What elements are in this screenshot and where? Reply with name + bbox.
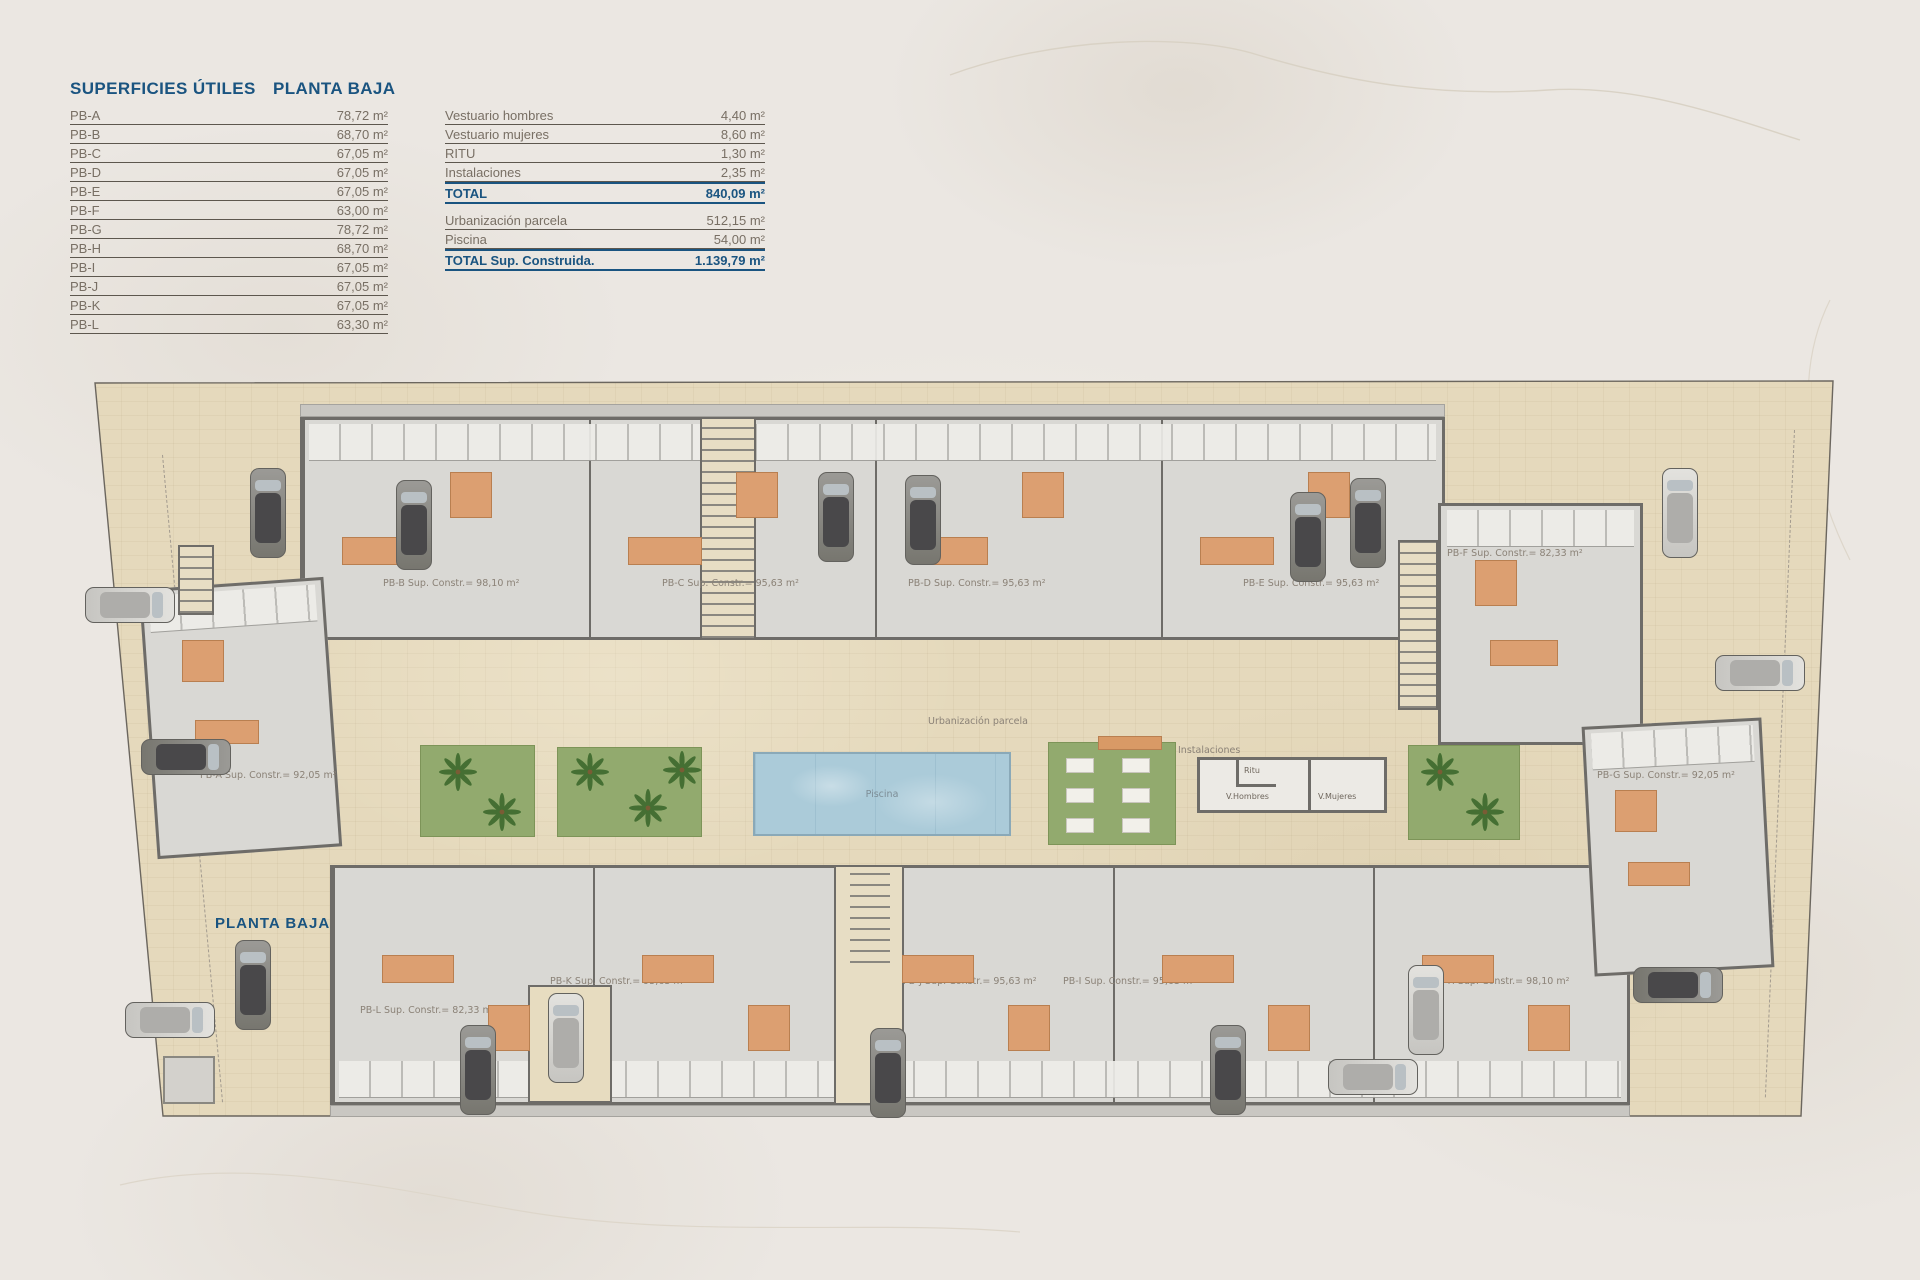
stairs-bottom — [850, 873, 890, 963]
pergola-shade — [1098, 736, 1162, 750]
row-label: PB-A — [70, 108, 100, 123]
parked-car — [85, 587, 175, 623]
swimming-pool: Piscina — [753, 752, 1011, 836]
parked-car — [1662, 468, 1698, 558]
sun-lounger — [1066, 818, 1094, 833]
bathroom-pods-band — [309, 424, 1436, 461]
unit-label-pbg: PB-G Sup. Constr.= 92,05 m² — [1597, 770, 1735, 781]
table-row: Urbanización parcela512,15 m² — [445, 211, 765, 230]
row-value: 68,70 m² — [337, 127, 388, 142]
facility-wall — [1236, 784, 1276, 787]
furniture-accent — [382, 955, 454, 983]
row-label: PB-H — [70, 241, 101, 256]
furniture-accent — [736, 472, 778, 518]
stair-corridor-top — [700, 417, 756, 640]
sun-lounger — [1122, 758, 1150, 773]
parked-car — [250, 468, 286, 558]
table-row: PB-C67,05 m² — [70, 144, 388, 163]
parked-car — [905, 475, 941, 565]
row-label: Instalaciones — [445, 165, 521, 180]
surfaces-title: SUPERFICIES ÚTILES — [70, 79, 256, 99]
pool-label: Piscina — [866, 789, 899, 800]
total-row: TOTAL Sup. Construida.1.139,79 m² — [445, 249, 765, 271]
row-label: PB-J — [70, 279, 98, 294]
row-label: PB-K — [70, 298, 100, 313]
bathroom-pods-band — [1591, 725, 1755, 770]
facilities-block: Ritu V.Hombres V.Mujeres — [1197, 757, 1387, 813]
row-value: 8,60 m² — [721, 127, 765, 142]
furniture-accent — [1008, 1005, 1050, 1051]
unit-label-pbb: PB-B Sup. Constr.= 98,10 m² — [383, 578, 519, 589]
row-value: 63,00 m² — [337, 203, 388, 218]
unit-label-pbf: PB-F Sup. Constr.= 82,33 m² — [1447, 548, 1583, 559]
parked-car — [125, 1002, 215, 1038]
table-row: PB-B68,70 m² — [70, 125, 388, 144]
building-top-row — [300, 417, 1445, 640]
row-value: 512,15 m² — [706, 213, 765, 228]
furniture-accent — [1490, 640, 1558, 666]
sun-lounger — [1122, 818, 1150, 833]
walkway-bottom — [330, 1105, 1630, 1117]
row-label: RITU — [445, 146, 475, 161]
table-row: PB-A78,72 m² — [70, 106, 388, 125]
row-label: Vestuario mujeres — [445, 127, 549, 142]
furniture-accent — [1162, 955, 1234, 983]
parked-car — [1210, 1025, 1246, 1115]
furniture-accent — [748, 1005, 790, 1051]
row-value: 67,05 m² — [337, 146, 388, 161]
row-label: Urbanización parcela — [445, 213, 567, 228]
parked-car — [1350, 478, 1386, 568]
total-label: TOTAL — [445, 186, 487, 201]
furniture-accent — [1268, 1005, 1310, 1051]
row-value: 67,05 m² — [337, 260, 388, 275]
palm-tree-icon — [628, 788, 668, 828]
furniture-accent — [1200, 537, 1274, 565]
table-row: PB-K67,05 m² — [70, 296, 388, 315]
sun-lounger — [1066, 788, 1094, 803]
row-label: PB-L — [70, 317, 99, 332]
furniture-accent — [450, 472, 492, 518]
built-areas-table: Urbanización parcela512,15 m² Piscina54,… — [445, 211, 765, 271]
palm-tree-icon — [482, 792, 522, 832]
row-value: 78,72 m² — [337, 222, 388, 237]
parked-car — [1328, 1059, 1418, 1095]
unit-label-pbc: PB-C Sup. Constr.= 95,63 m² — [662, 578, 799, 589]
table-row: Piscina54,00 m² — [445, 230, 765, 249]
table-row: PB-J67,05 m² — [70, 277, 388, 296]
row-value: 4,40 m² — [721, 108, 765, 123]
parked-car — [1290, 492, 1326, 582]
furniture-accent — [902, 955, 974, 983]
table-row: PB-E67,05 m² — [70, 182, 388, 201]
building-unit-pbg — [1582, 717, 1775, 976]
palm-tree-icon — [1465, 792, 1505, 832]
unit-label-pbl: PB-L Sup. Constr.= 82,33 m² — [360, 1005, 496, 1016]
storage-box — [163, 1056, 215, 1104]
sun-lounger — [1122, 788, 1150, 803]
urbanization-label: Urbanización parcela — [928, 716, 1028, 727]
parked-car — [1633, 967, 1723, 1003]
total-row: TOTAL840,09 m² — [445, 182, 765, 204]
palm-tree-icon — [662, 750, 702, 790]
stair-corridor-pbf — [1398, 540, 1438, 710]
table-row: Instalaciones2,35 m² — [445, 163, 765, 182]
furniture-accent — [642, 955, 714, 983]
table-row: PB-H68,70 m² — [70, 239, 388, 258]
table-row: PB-L63,30 m² — [70, 315, 388, 334]
parked-car — [818, 472, 854, 562]
furniture-accent — [1475, 560, 1517, 606]
bathroom-pods-band — [1447, 510, 1634, 547]
floor-title-bottom: PLANTA BAJA — [215, 915, 330, 932]
unit-label-pbd: PB-D Sup. Constr.= 95,63 m² — [908, 578, 1046, 589]
table-row: PB-I67,05 m² — [70, 258, 388, 277]
palm-tree-icon — [438, 752, 478, 792]
row-label: PB-D — [70, 165, 101, 180]
row-label: PB-E — [70, 184, 100, 199]
mens-changing-label: V.Hombres — [1226, 792, 1269, 801]
row-value: 67,05 m² — [337, 184, 388, 199]
ritu-room-label: Ritu — [1244, 766, 1260, 775]
furniture-accent — [182, 640, 224, 682]
row-value: 78,72 m² — [337, 108, 388, 123]
common-areas-table: Vestuario hombres4,40 m² Vestuario mujer… — [445, 106, 765, 204]
furniture-accent — [1528, 1005, 1570, 1051]
row-value: 54,00 m² — [714, 232, 765, 247]
womens-changing-label: V.Mujeres — [1318, 792, 1356, 801]
palm-tree-icon — [1420, 752, 1460, 792]
table-row: RITU1,30 m² — [445, 144, 765, 163]
parked-car — [1408, 965, 1444, 1055]
row-label: Vestuario hombres — [445, 108, 553, 123]
row-label: Piscina — [445, 232, 487, 247]
total-label: TOTAL Sup. Construida. — [445, 253, 595, 268]
parked-car — [396, 480, 432, 570]
row-value: 2,35 m² — [721, 165, 765, 180]
row-label: PB-C — [70, 146, 101, 161]
row-value: 1,30 m² — [721, 146, 765, 161]
facility-wall — [1236, 760, 1239, 786]
table-row: PB-D67,05 m² — [70, 163, 388, 182]
table-row: Vestuario hombres4,40 m² — [445, 106, 765, 125]
furniture-accent — [1615, 790, 1657, 832]
parked-car — [870, 1028, 906, 1118]
row-value: 67,05 m² — [337, 165, 388, 180]
parked-car — [460, 1025, 496, 1115]
furniture-accent — [628, 537, 702, 565]
building-unit-pbf — [1438, 503, 1643, 745]
parked-car — [141, 739, 231, 775]
row-label: PB-G — [70, 222, 102, 237]
row-value: 67,05 m² — [337, 279, 388, 294]
row-label: PB-I — [70, 260, 95, 275]
parked-car — [1715, 655, 1805, 691]
table-row: PB-F63,00 m² — [70, 201, 388, 220]
facility-wall — [1308, 760, 1311, 810]
furniture-accent — [1628, 862, 1690, 886]
stairs-pba — [178, 545, 214, 615]
total-value: 1.139,79 m² — [695, 253, 765, 268]
row-value: 68,70 m² — [337, 241, 388, 256]
row-value: 63,30 m² — [337, 317, 388, 332]
sun-lounger — [1066, 758, 1094, 773]
table-row: PB-G78,72 m² — [70, 220, 388, 239]
table-row: Vestuario mujeres8,60 m² — [445, 125, 765, 144]
page-canvas: SUPERFICIES ÚTILES PLANTA BAJA PB-A78,72… — [0, 0, 1920, 1280]
row-label: PB-F — [70, 203, 100, 218]
row-label: PB-B — [70, 127, 100, 142]
palm-tree-icon — [570, 752, 610, 792]
total-value: 840,09 m² — [706, 186, 765, 201]
walkway-top — [300, 404, 1445, 417]
floor-title-top: PLANTA BAJA — [273, 79, 395, 99]
furniture-accent — [1022, 472, 1064, 518]
facilities-label: Instalaciones — [1178, 745, 1240, 756]
parked-car — [548, 993, 584, 1083]
surfaces-table: PB-A78,72 m² PB-B68,70 m² PB-C67,05 m² P… — [70, 106, 388, 334]
row-value: 67,05 m² — [337, 298, 388, 313]
parked-car — [235, 940, 271, 1030]
